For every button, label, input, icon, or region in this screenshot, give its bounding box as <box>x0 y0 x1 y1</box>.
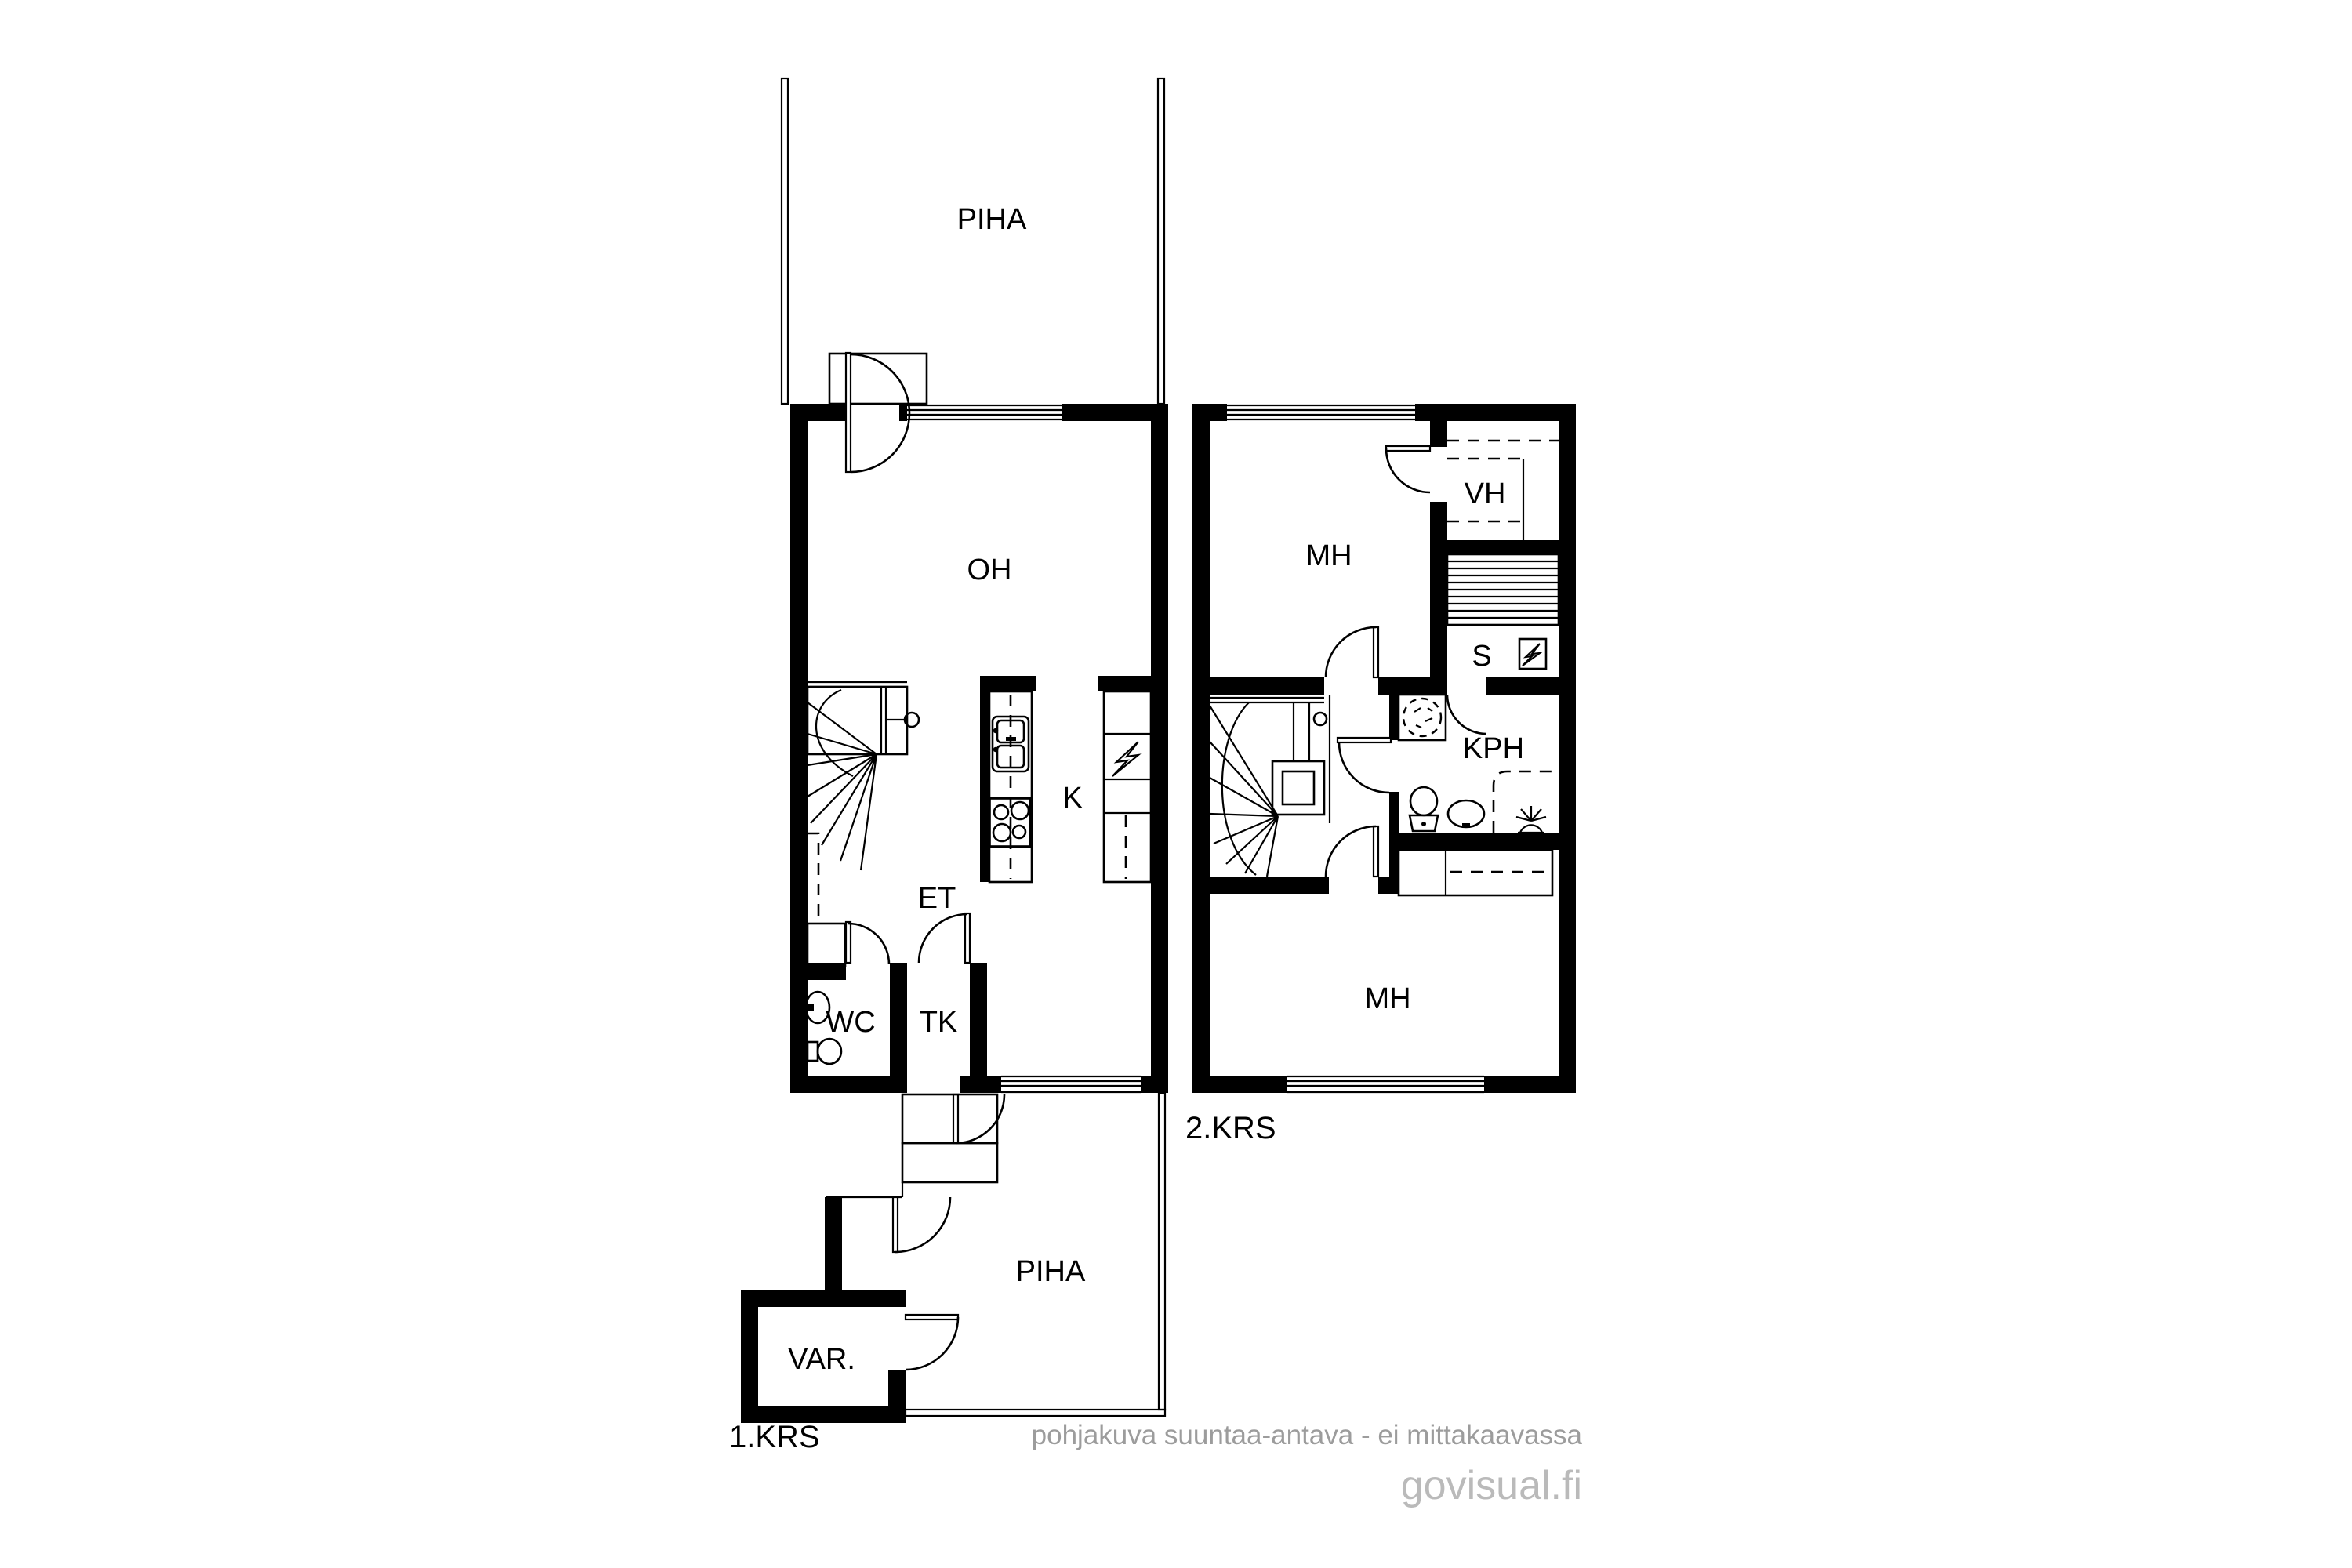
yard-fence-right <box>1158 78 1164 404</box>
window-bottom-1f <box>1001 1076 1141 1092</box>
window-top-2f <box>1227 405 1415 419</box>
yard-fence-left <box>782 78 788 404</box>
storage-door <box>906 1315 958 1370</box>
label-bedroom-top: MH <box>1305 539 1352 572</box>
toilet-icon-2f <box>1410 787 1438 831</box>
stair-newel-2f <box>1314 713 1327 725</box>
walls-1f <box>790 404 1168 1093</box>
stair-bulkhead <box>1447 554 1559 625</box>
watermark: pohjakuva suuntaa-antava - ei mittakaava… <box>1032 1420 1583 1508</box>
stairs-2f <box>1210 695 1330 877</box>
wc-door <box>846 922 889 964</box>
yard-wall-stub <box>825 1197 842 1290</box>
yard-boundary-bottom <box>906 1410 1165 1416</box>
yard-top <box>782 78 1164 404</box>
washing-machine-icon <box>1399 695 1446 740</box>
exterior-step-2 <box>902 1143 997 1182</box>
shower-boundary <box>1494 771 1557 833</box>
label-floor-2: 2.KRS <box>1185 1111 1276 1145</box>
vestibule-door-inner <box>919 913 970 963</box>
front-door-leaf <box>846 353 851 472</box>
kitchen-island <box>989 691 1032 882</box>
label-entry-hall: ET <box>918 882 956 915</box>
stairwell-opening <box>1272 761 1324 815</box>
bedroom-bottom-door <box>1326 826 1378 877</box>
label-walk-in-closet: VH <box>1465 477 1506 510</box>
yard-boundary-right <box>1159 1093 1165 1410</box>
electrical-panel-icon <box>1112 742 1138 776</box>
watermark-brand: govisual.fi <box>1401 1463 1582 1508</box>
second-floor-plan: MH VH S KPH MH 2.KRS <box>1185 404 1576 1145</box>
closet-door <box>1386 446 1430 492</box>
label-yard-bottom: PIHA <box>1016 1255 1086 1288</box>
sink-icon-2f <box>1448 800 1484 828</box>
yard-gate-door <box>893 1197 950 1252</box>
label-vestibule: TK <box>920 1006 958 1039</box>
bathroom-door-top <box>1447 695 1486 734</box>
kitchen-counter <box>1104 691 1151 882</box>
window-top-1f <box>907 405 1062 419</box>
stairs-1f <box>808 682 919 870</box>
label-bedroom-bottom: MH <box>1364 982 1410 1015</box>
shower-icon <box>1516 806 1546 833</box>
label-kitchen: K <box>1062 782 1082 815</box>
label-wc: WC <box>826 1006 875 1039</box>
utility-s <box>1519 639 1546 669</box>
electrical-panel-icon-2f <box>1523 644 1540 666</box>
bathroom-door-hall <box>1338 738 1391 793</box>
watermark-disclaimer: pohjakuva suuntaa-antava - ei mittakaava… <box>1032 1420 1583 1450</box>
window-bottom-2f <box>1287 1076 1484 1092</box>
label-utility: S <box>1472 640 1491 673</box>
label-storage: VAR. <box>788 1343 855 1376</box>
floor-plan-canvas: PIHA OH K ET WC TK PIHA VAR. 1.KRS <box>0 0 2352 1568</box>
label-yard-top: PIHA <box>957 203 1027 236</box>
yard-bottom <box>825 1093 1165 1416</box>
wardrobe-row <box>1399 850 1552 895</box>
toilet-icon <box>808 1039 841 1064</box>
first-floor-plan: PIHA OH K ET WC TK PIHA VAR. 1.KRS <box>729 78 1168 1454</box>
label-living-room: OH <box>967 554 1012 586</box>
label-floor-1: 1.KRS <box>729 1420 820 1454</box>
entry-hall-closet <box>808 833 845 966</box>
label-bathroom: KPH <box>1463 732 1524 765</box>
bedroom-top-door <box>1326 627 1378 677</box>
